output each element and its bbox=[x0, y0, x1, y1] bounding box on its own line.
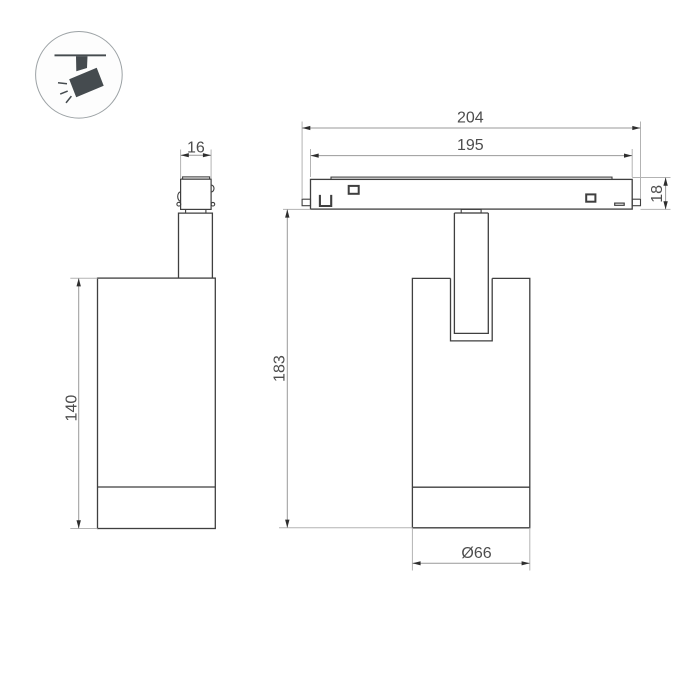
svg-text:18: 18 bbox=[649, 185, 666, 203]
svg-text:204: 204 bbox=[457, 110, 484, 127]
svg-text:16: 16 bbox=[187, 139, 205, 156]
svg-text:Ø66: Ø66 bbox=[461, 545, 491, 562]
svg-text:140: 140 bbox=[63, 395, 80, 422]
svg-text:195: 195 bbox=[457, 137, 484, 154]
svg-text:183: 183 bbox=[272, 355, 289, 382]
